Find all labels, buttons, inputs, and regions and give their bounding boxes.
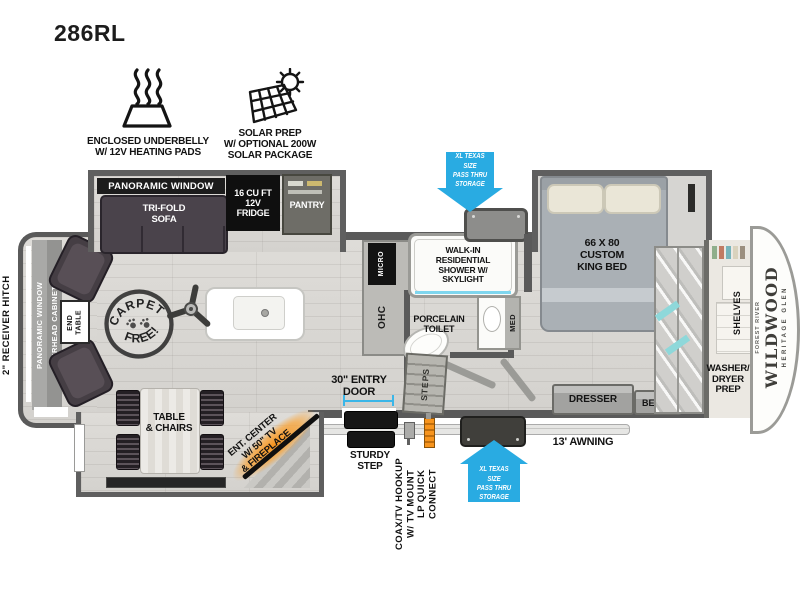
blanket-hem [542, 288, 662, 302]
page-title: 286RL [54, 20, 126, 47]
shower-label: WALK-IN RESIDENTIAL SHOWER W/ SKYLIGHT [411, 236, 515, 295]
clothes-item [719, 246, 724, 259]
interior-steps: STEPS [402, 353, 448, 416]
dinette-bottom-window [106, 477, 226, 488]
ceiling-fan-icon [159, 277, 223, 341]
micro-label: MICRO [378, 251, 386, 276]
solar-panel-icon [238, 68, 310, 128]
bedroom-wall [524, 234, 532, 292]
ohc-label: OHC [377, 290, 389, 344]
entry-door-label: 30" ENTRY DOOR [316, 374, 402, 399]
sturdy-step [347, 431, 395, 448]
dining-chair [200, 434, 224, 470]
pantry-shelf [288, 190, 322, 194]
coax-hookup-stem [407, 438, 410, 445]
microwave: MICRO [368, 243, 396, 285]
bath-wall [450, 352, 514, 358]
receiver-hitch-label: 2" RECEIVER HITCH [1, 240, 12, 410]
dresser-label: DRESSER [569, 394, 617, 405]
pass-thru-arrow-top: XL TEXAS SIZE PASS THRU STORAGE [437, 152, 503, 212]
mirror-stripes [656, 248, 702, 412]
toilet-label: PORCELAIN TOILET [406, 314, 472, 334]
coax-label: COAX/TV HOOKUP W/ TV MOUNT [394, 448, 417, 560]
clothes-item [740, 246, 745, 259]
dining-chair [116, 434, 140, 470]
sink-faucet [261, 309, 269, 317]
pantry: PANTRY [282, 174, 332, 235]
fridge-label: 16 CU FT 12V FRIDGE [234, 188, 271, 218]
shower: WALK-IN RESIDENTIAL SHOWER W/ SKYLIGHT [408, 233, 518, 298]
floorplan-page: 286RL ENCLOSED UNDERBELLY W/ 12V HEATING… [0, 0, 800, 600]
pillow [547, 184, 604, 214]
door-measure-line [344, 400, 394, 402]
pass-thru-top-label: XL TEXAS SIZE PASS THRU STORAGE [451, 151, 489, 189]
sofa-seams [102, 226, 226, 252]
hanging-clothes [712, 246, 754, 259]
arrow-head-up [460, 440, 528, 464]
brand-series-label: HERITAGE GLEN [782, 286, 789, 367]
table-chairs-label: TABLE & CHAIRS [132, 412, 206, 434]
brand-name-label: WILDWOOD [762, 266, 781, 388]
clothes-item [733, 246, 738, 259]
pass-thru-bottom-label: XL TEXAS SIZE PASS THRU STORAGE [473, 464, 515, 502]
awning-label: 13' AWNING [546, 436, 620, 448]
end-table: END TABLE [60, 300, 90, 344]
tri-fold-sofa: TRI-FOLD SOFA [100, 195, 228, 254]
lp-label: LP QUICK CONNECT [416, 452, 439, 536]
dresser: DRESSER [552, 384, 634, 415]
clothes-item [712, 246, 717, 259]
fridge: 16 CU FT 12V FRIDGE [226, 175, 280, 231]
washer-dryer-label: WASHER/ DRYER PREP [698, 364, 758, 396]
mirrored-wardrobe [654, 246, 704, 414]
panoramic-window-label: PANORAMIC WINDOW [108, 181, 213, 192]
pantry-shelf [288, 181, 303, 186]
pantry-shelf [307, 181, 322, 186]
dinette-side-window [74, 424, 85, 472]
rear-bottom-window [34, 407, 68, 417]
panoramic-window-bar: PANORAMIC WINDOW [97, 178, 225, 194]
end-table-label: END TABLE [67, 310, 84, 335]
rear-window-glass [26, 246, 31, 402]
bath-sink [483, 306, 501, 332]
heating-pads-icon [114, 64, 180, 134]
shelves-label: SHELVES [732, 280, 743, 346]
sofa-label: TRI-FOLD SOFA [102, 204, 226, 225]
med-cabinet: MED [477, 296, 521, 350]
latch-dot [472, 215, 475, 218]
island-sink [233, 296, 285, 330]
med-label: MED [508, 314, 517, 332]
brand-maker-label: FOREST RIVER [755, 301, 762, 354]
solar-caption: SOLAR PREP W/ OPTIONAL 200W SOLAR PACKAG… [192, 128, 348, 162]
bed-label: 66 X 80 CUSTOM KING BED [552, 238, 652, 273]
rear-panoramic-window-label: PANORAMIC WINDOW [32, 240, 47, 410]
lp-quick-connect-icon [424, 418, 435, 448]
wardrobe-divider [677, 248, 679, 412]
pass-thru-arrow-bottom: XL TEXAS SIZE PASS THRU STORAGE [460, 440, 528, 502]
brand-logo: FOREST RIVER WILDWOOD HERITAGE GLEN [752, 246, 792, 408]
pass-thru-compartment-top [464, 208, 528, 242]
steps-label: STEPS [419, 367, 431, 401]
clothes-item [726, 246, 731, 259]
lp-cap [426, 413, 431, 419]
med-band: MED [505, 298, 519, 348]
arrow-head-down [437, 188, 503, 212]
sturdy-step [344, 411, 398, 429]
bedroom-slide-window [688, 184, 695, 212]
latch-dot [517, 215, 520, 218]
coax-hookup-icon [404, 422, 415, 439]
pantry-label: PANTRY [284, 200, 330, 210]
pillow [604, 184, 661, 214]
